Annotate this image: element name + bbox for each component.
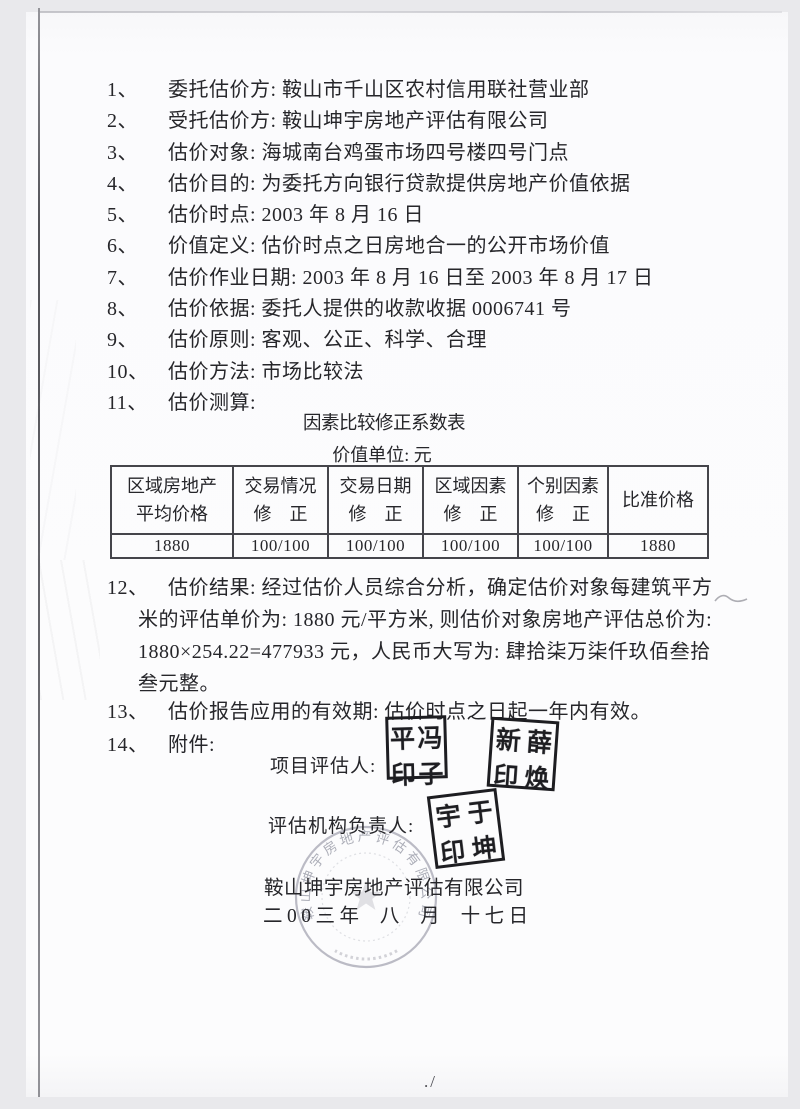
header-cell: 交易情况修 正: [233, 466, 328, 534]
data-cell: 100/100: [423, 534, 518, 558]
item-text: 估价时点: 2003 年 8 月 16 日: [168, 198, 424, 229]
table-title: 因素比较修正系数表: [303, 409, 465, 435]
round-stamp-serial-dots: [335, 951, 397, 959]
header-cell: 个别因素修 正: [518, 466, 608, 534]
item-number: 4、: [107, 167, 168, 198]
list-item: 8、估价依据: 委托人提供的收款收据 0006741 号: [107, 292, 654, 323]
list-item: 5、估价时点: 2003 年 8 月 16 日: [107, 198, 654, 229]
item-number: 1、: [107, 73, 168, 104]
table-data-row: 1880 100/100 100/100 100/100 100/100 188…: [111, 534, 708, 558]
item-number: 12、: [107, 571, 168, 603]
header-cell: 区域因素修 正: [423, 466, 518, 534]
item-text: 附件:: [168, 728, 215, 760]
list-item: 2、受托估价方: 鞍山坤宇房地产评估有限公司: [107, 104, 654, 135]
item-number: 7、: [107, 261, 168, 292]
list-item: 1、委托估价方: 鞍山市千山区农村信用联社营业部: [107, 73, 654, 104]
appraiser-seal-xue-huanxin: 新薛 印焕: [487, 717, 560, 792]
paper-crease: [40, 560, 100, 700]
project-appraisers-label: 项目评估人:: [270, 751, 376, 778]
item-14-attachments: 14、附件:: [107, 728, 215, 760]
item-number: 13、: [107, 695, 168, 727]
footer-slash-mark: ./: [424, 1072, 437, 1092]
list-item: 7、估价作业日期: 2003 年 8 月 16 日至 2003 年 8 月 17…: [107, 261, 654, 292]
item-text: 估价依据: 委托人提供的收款收据 0006741 号: [168, 292, 572, 323]
list-item: 3、估价对象: 海城南台鸡蛋市场四号楼四号门点: [107, 136, 654, 167]
item-text: 估价方法: 市场比较法: [168, 355, 364, 386]
item-number: 14、: [107, 728, 168, 760]
item-text: 受托估价方: 鞍山坤宇房地产评估有限公司: [168, 104, 549, 135]
data-cell: 1880: [111, 534, 233, 558]
agency-head-label: 评估机构负责人:: [268, 811, 414, 838]
item-number: 2、: [107, 104, 168, 135]
item-text: 米的评估单价为: 1880 元/平方米, 则估价对象房地产评估总价为:: [107, 603, 713, 635]
list-item: 10、估价方法: 市场比较法: [107, 355, 654, 386]
item-text: 估价测算:: [168, 386, 256, 417]
data-cell: 1880: [608, 534, 708, 558]
paper-crease: [30, 300, 76, 560]
item-number: 5、: [107, 198, 168, 229]
item-13-validity: 13、估价报告应用的有效期: 估价时点之日起一年内有效。: [107, 695, 651, 727]
list-item: 9、估价原则: 客观、公正、科学、合理: [107, 323, 654, 354]
data-cell: 100/100: [328, 534, 423, 558]
numbered-list: 1、委托估价方: 鞍山市千山区农村信用联社营业部 2、受托估价方: 鞍山坤宇房地…: [107, 73, 654, 417]
item-number: 6、: [107, 229, 168, 260]
item-text: 估价目的: 为委托方向银行贷款提供房地产价值依据: [168, 167, 631, 198]
item-number: 9、: [107, 323, 168, 354]
item-text: 1880×254.22=477933 元，人民币大写为: 肆拾柒万柒仟玖佰叁拾: [107, 635, 713, 667]
list-item: 4、估价目的: 为委托方向银行贷款提供房地产价值依据: [107, 167, 654, 198]
item-number: 8、: [107, 292, 168, 323]
item-text: 估价原则: 客观、公正、科学、合理: [168, 323, 487, 354]
table-unit-subtitle: 价值单位: 元: [332, 441, 432, 467]
appraiser-seal-feng-ziping: 平冯 印子: [385, 715, 448, 780]
list-item: 6、价值定义: 估价时点之日房地合一的公开市场价值: [107, 229, 654, 260]
item-12-result: 12、估价结果: 经过估价人员综合分析，确定估价对象每建筑平方 米的评估单价为:…: [107, 571, 713, 699]
item-number: 3、: [107, 136, 168, 167]
item-text: 价值定义: 估价时点之日房地合一的公开市场价值: [168, 229, 610, 260]
header-cell: 交易日期修 正: [328, 466, 423, 534]
header-cell: 比准价格: [608, 466, 708, 534]
coefficient-table: 区域房地产平均价格 交易情况修 正 交易日期修 正 区域因素修 正 个别因素修 …: [110, 465, 709, 559]
item-text: 估价对象: 海城南台鸡蛋市场四号楼四号门点: [168, 136, 569, 167]
item-number: 10、: [107, 355, 168, 386]
data-cell: 100/100: [233, 534, 328, 558]
item-text: 估价结果: 经过估价人员综合分析，确定估价对象每建筑平方: [168, 571, 713, 603]
company-name: 鞍山坤宇房地产评估有限公司: [264, 871, 524, 900]
document-date: 二00三年 八 月 十七日: [263, 899, 533, 928]
item-text: 叁元整。: [107, 667, 713, 699]
item-text: 估价作业日期: 2003 年 8 月 16 日至 2003 年 8 月 17 日: [168, 261, 654, 292]
table-header-row: 区域房地产平均价格 交易情况修 正 交易日期修 正 区域因素修 正 个别因素修 …: [111, 466, 708, 534]
data-cell: 100/100: [518, 534, 608, 558]
scan-top-edge-line: [40, 11, 782, 13]
scanned-appraisal-document: 1、委托估价方: 鞍山市千山区农村信用联社营业部 2、受托估价方: 鞍山坤宇房地…: [0, 0, 800, 1109]
header-cell: 区域房地产平均价格: [111, 466, 233, 534]
pen-squiggle-mark: [714, 592, 748, 608]
item-number: 11、: [107, 386, 168, 417]
agency-head-seal-yu-kunyu: 宇于 印坤: [427, 788, 505, 869]
item-text: 委托估价方: 鞍山市千山区农村信用联社营业部: [168, 73, 590, 104]
